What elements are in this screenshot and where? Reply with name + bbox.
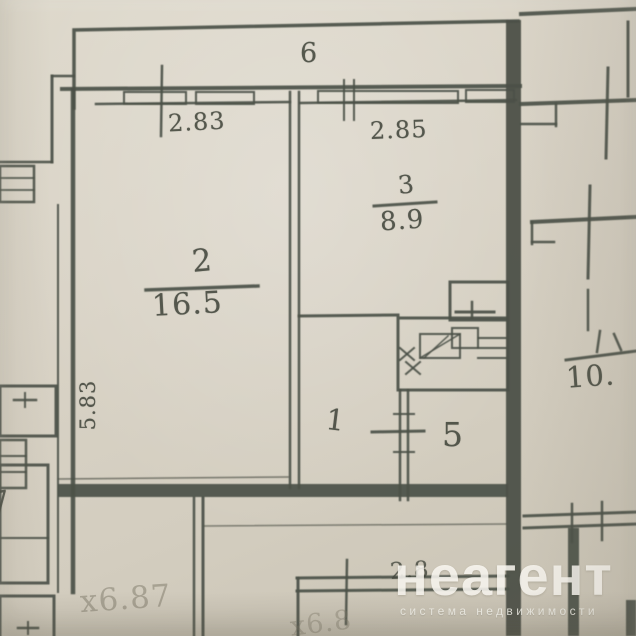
room5-number: 5: [442, 418, 464, 451]
dim-tick: [606, 68, 608, 158]
neighbor-right-area: 10.: [565, 360, 616, 392]
balcony-number: 6: [300, 40, 318, 67]
bottom-wall: [58, 484, 508, 497]
dim-tick: [161, 66, 162, 136]
dim-width-room3: 2.85: [370, 117, 428, 143]
room3-area: 8.9: [379, 206, 425, 235]
watermark-logo: неагент: [394, 548, 613, 604]
dim-width-room2: 2.83: [167, 109, 226, 136]
pencil-note-bottom: х6.8: [289, 606, 354, 636]
room2-area: 16.5: [151, 288, 223, 322]
vent-shaft: [450, 282, 508, 320]
watermark-tagline: система недвижимости: [400, 605, 598, 617]
dim-tick: [588, 186, 590, 278]
dim-height-room2: 5.83: [78, 365, 102, 445]
pencil-note-left: х6.87: [79, 581, 172, 618]
room3-number: 3: [397, 171, 416, 198]
room2-number: 2: [191, 245, 214, 278]
floorplan-photo: 6 2.83 2.85 2 16.5 3 8.9 5.83 1 5 10. 7 …: [0, 0, 636, 636]
balcony-outline: [74, 21, 518, 108]
floorplan-drawing: [0, 0, 636, 636]
room1-number: 1: [324, 405, 347, 436]
